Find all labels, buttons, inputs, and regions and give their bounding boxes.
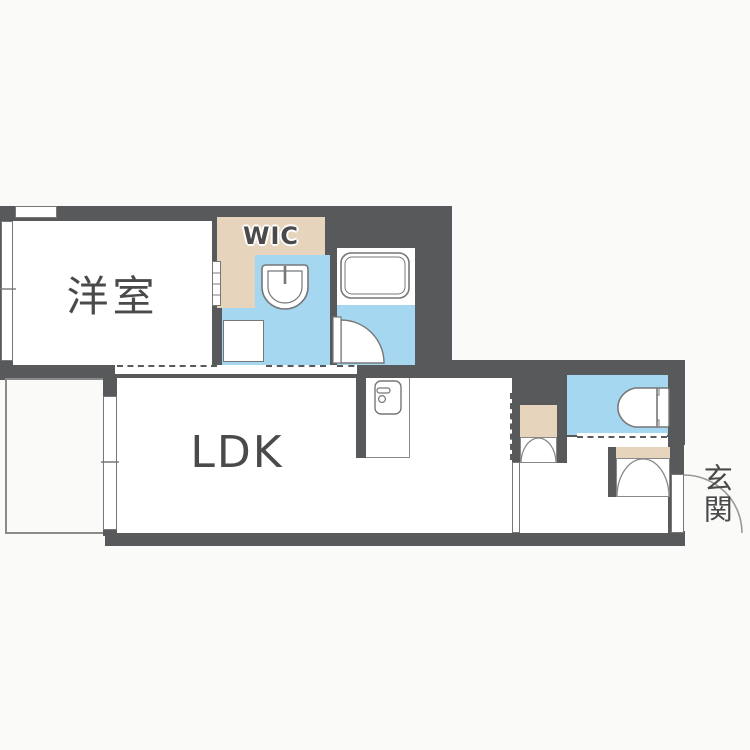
room-bath-entry <box>337 305 415 365</box>
room-toilet <box>567 375 668 435</box>
closet-hall-front <box>520 437 557 463</box>
closet-hall-back <box>520 405 557 437</box>
opening-ldk-hall <box>510 393 512 460</box>
room-western-label: 洋室 <box>66 263 158 324</box>
window-west <box>1 221 13 361</box>
room-wic: WIC <box>217 217 325 255</box>
wall-stub-closet-left <box>512 437 520 463</box>
kitchen-alcove <box>366 378 410 458</box>
room-western: 洋室 <box>13 221 212 365</box>
wall-stub-closet-right <box>557 437 567 463</box>
balcony <box>5 378 105 534</box>
window-north <box>15 206 57 218</box>
wall-stub-shoebox <box>608 447 616 497</box>
entrance-door-leaf <box>671 474 684 533</box>
wall-bottom <box>105 531 685 546</box>
room-ldk-label-box: LDK <box>152 418 322 486</box>
closet-entrance-back <box>616 447 670 458</box>
wall-kitchen-stub <box>356 378 366 458</box>
wic-door <box>212 261 221 306</box>
entrance-label-box: 玄関 <box>696 458 736 530</box>
window-balcony <box>103 396 117 530</box>
opening-bath <box>337 365 377 375</box>
room-wic-leg <box>217 255 255 308</box>
closet-entrance-front <box>616 458 670 497</box>
floor-plan: 洋室 WIC LDK <box>0 0 750 750</box>
washer-pan <box>223 320 264 362</box>
room-bath <box>337 248 415 305</box>
room-ldk-label: LDK <box>190 427 283 478</box>
opening-washroom <box>266 365 326 375</box>
room-wic-label: WIC <box>243 222 299 250</box>
wall-stub-window-top <box>103 378 117 398</box>
entrance-label: 玄関 <box>701 463 731 525</box>
wall-thin-hall <box>512 462 520 533</box>
opening-western-ldk <box>117 365 217 375</box>
opening-toilet <box>577 433 667 438</box>
